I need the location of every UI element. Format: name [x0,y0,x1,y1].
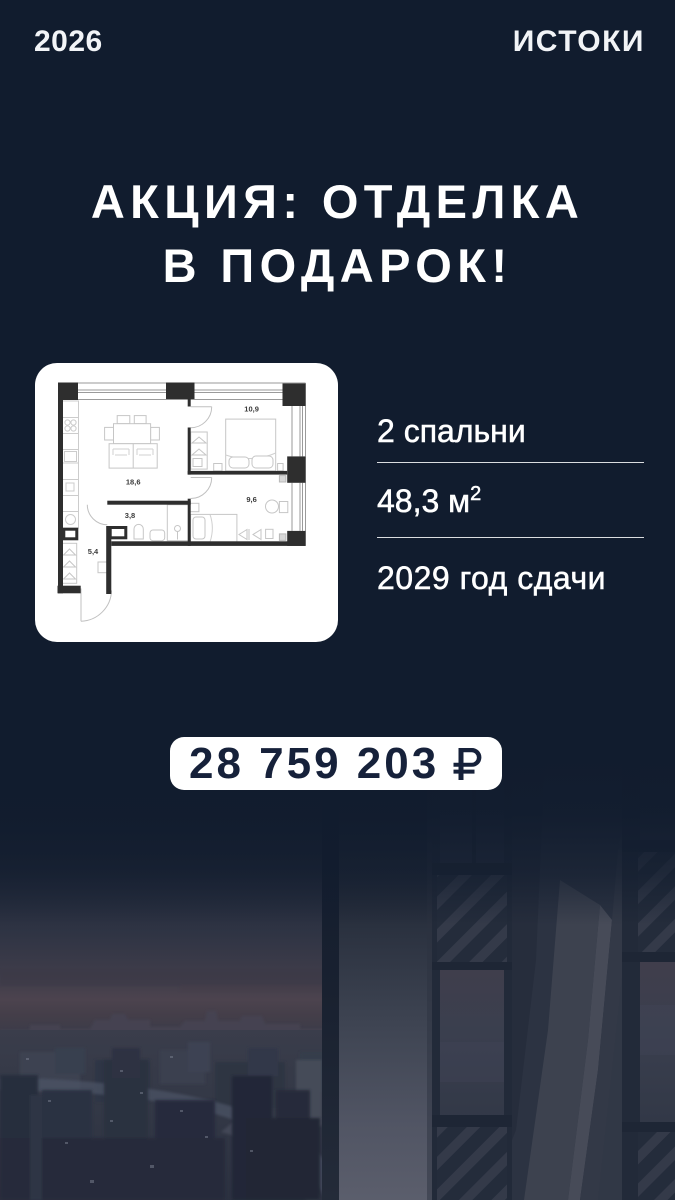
svg-text:9,6: 9,6 [246,495,256,504]
svg-text:18,6: 18,6 [126,478,141,487]
svg-text:10,9: 10,9 [244,405,259,414]
svg-text:5,4: 5,4 [88,547,99,556]
svg-text:3,8: 3,8 [125,511,135,520]
